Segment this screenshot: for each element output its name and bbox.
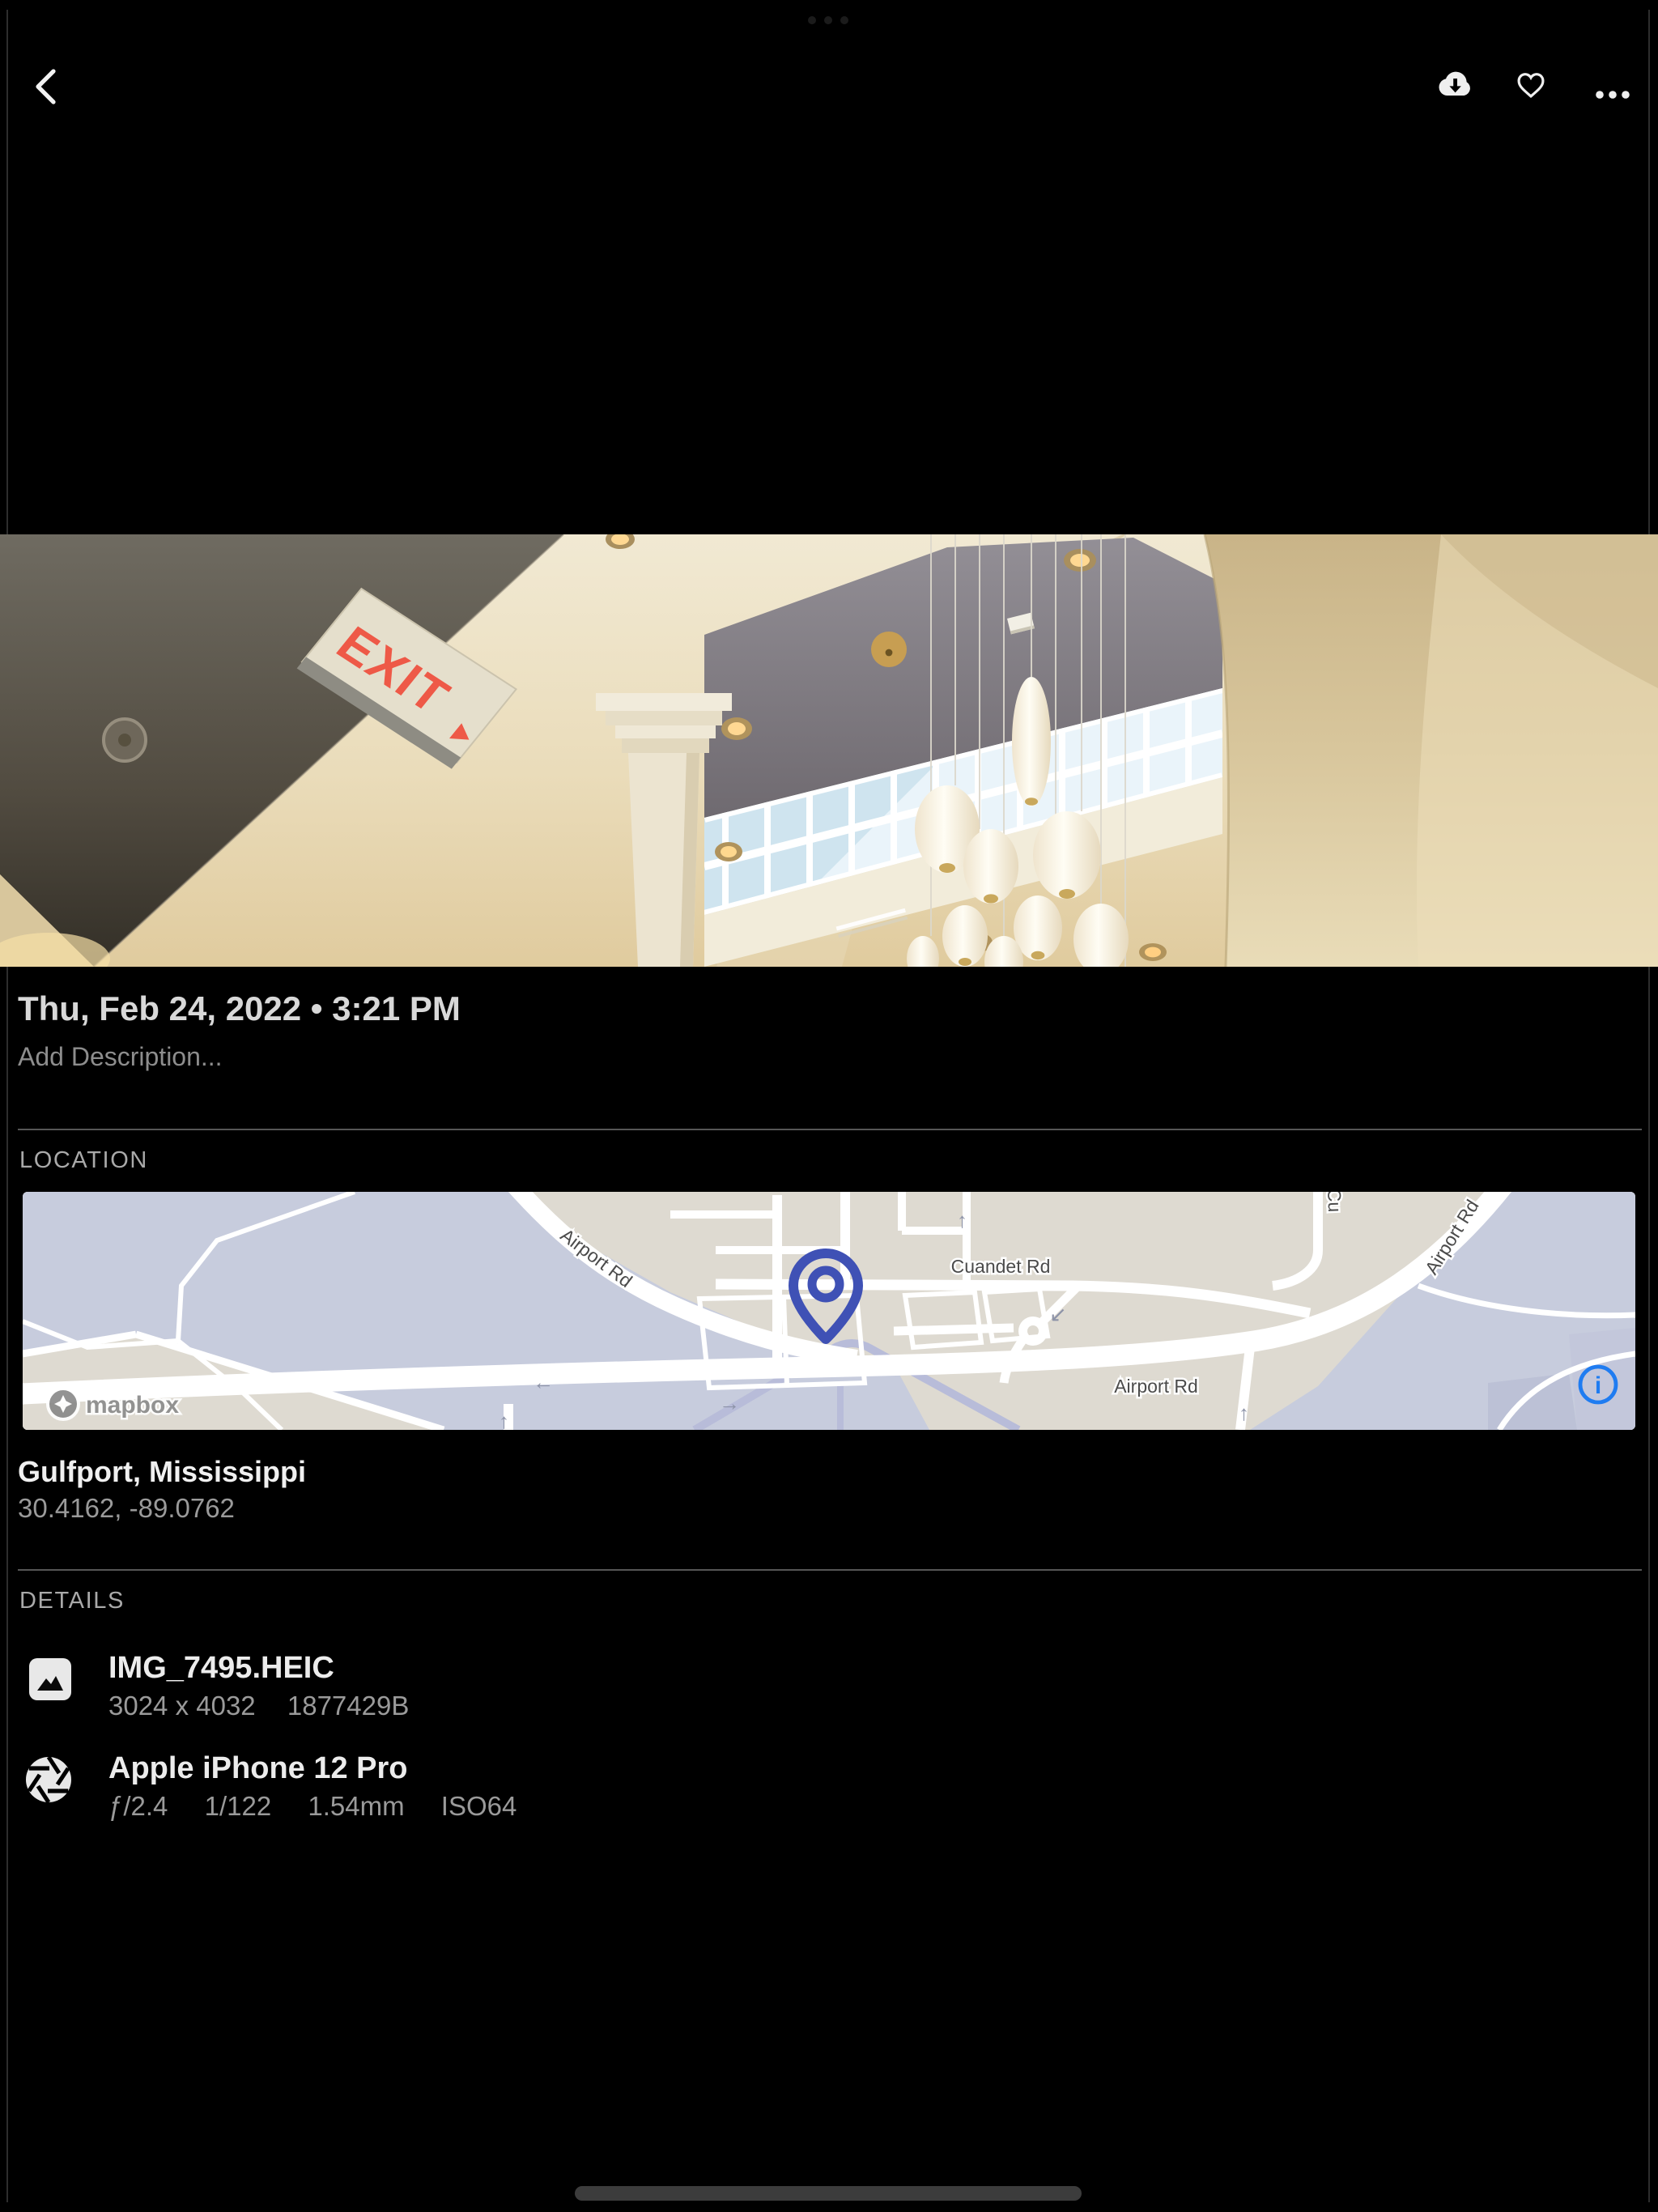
cross-street-label: Cu bbox=[1324, 1192, 1346, 1213]
divider bbox=[18, 1129, 1642, 1130]
camera-name: Apple iPhone 12 Pro bbox=[108, 1752, 408, 1788]
exif-focal-length: 1.54mm bbox=[308, 1793, 404, 1823]
photo-preview[interactable]: EXIT bbox=[0, 534, 1658, 967]
ellipsis-icon bbox=[1595, 89, 1630, 100]
file-size: 1877429B bbox=[287, 1692, 410, 1723]
cuandet-rd-label: Cuandet Rd bbox=[951, 1256, 1051, 1277]
camera-exif: ƒ/2.4 1/122 1.54mm ISO64 bbox=[108, 1793, 517, 1823]
more-options-button[interactable] bbox=[1595, 79, 1630, 91]
chevron-left-icon bbox=[32, 68, 58, 105]
image-icon bbox=[26, 1655, 74, 1704]
info-icon: i bbox=[1595, 1372, 1601, 1399]
download-button[interactable] bbox=[1435, 70, 1473, 99]
map-canvas: ←→ ↑↑ ↑↙ Airport Rd Cuandet Rd Airport R… bbox=[23, 1192, 1635, 1430]
details-header: DETAILS bbox=[19, 1589, 125, 1614]
exif-aperture: ƒ/2.4 bbox=[108, 1793, 168, 1823]
file-name: IMG_7495.HEIC bbox=[108, 1652, 334, 1687]
description-input[interactable]: Add Description... bbox=[18, 1044, 223, 1074]
exif-iso: ISO64 bbox=[441, 1793, 517, 1823]
location-header: LOCATION bbox=[19, 1148, 148, 1174]
multitask-dots-icon[interactable] bbox=[808, 16, 848, 24]
left-screen-edge bbox=[6, 10, 8, 2202]
file-dimensions: 3024 x 4032 bbox=[108, 1692, 256, 1723]
exif-shutter: 1/122 bbox=[205, 1793, 272, 1823]
camera-icon-wrap bbox=[23, 1754, 74, 1806]
file-meta: 3024 x 4032 1877429B bbox=[108, 1692, 409, 1723]
svg-text:→: → bbox=[719, 1391, 740, 1415]
mapbox-wordmark: mapbox bbox=[86, 1392, 179, 1419]
svg-text:↙: ↙ bbox=[1049, 1302, 1067, 1326]
photo-detail-screen: EXIT Thu, Feb 24, 2022 • 3:21 PM Add Des… bbox=[0, 0, 1658, 2212]
svg-text:↑: ↑ bbox=[499, 1409, 509, 1430]
heart-icon bbox=[1516, 70, 1546, 99]
svg-text:↑: ↑ bbox=[1239, 1401, 1249, 1425]
right-screen-edge bbox=[1648, 10, 1650, 2202]
svg-text:↑: ↑ bbox=[957, 1208, 967, 1232]
favorite-button[interactable] bbox=[1516, 70, 1546, 99]
smoke-detector bbox=[104, 719, 146, 761]
mapbox-logo[interactable]: mapbox bbox=[48, 1389, 179, 1419]
home-indicator[interactable] bbox=[575, 2186, 1082, 2201]
aperture-icon bbox=[23, 1754, 74, 1806]
cloud-download-icon bbox=[1435, 70, 1473, 99]
photo-date: Thu, Feb 24, 2022 • 3:21 PM bbox=[18, 991, 461, 1030]
airport-rd-bottom-label: Airport Rd bbox=[1114, 1376, 1198, 1397]
file-type-icon bbox=[26, 1655, 74, 1704]
back-button[interactable] bbox=[32, 68, 58, 105]
svg-text:←: ← bbox=[533, 1370, 554, 1394]
location-place: Gulfport, Mississippi bbox=[18, 1456, 306, 1490]
divider bbox=[18, 1569, 1642, 1571]
location-map[interactable]: ←→ ↑↑ ↑↙ Airport Rd Cuandet Rd Airport R… bbox=[23, 1192, 1635, 1430]
location-coordinates: 30.4162, -89.0762 bbox=[18, 1495, 235, 1525]
photo-scene: EXIT bbox=[0, 534, 1658, 967]
